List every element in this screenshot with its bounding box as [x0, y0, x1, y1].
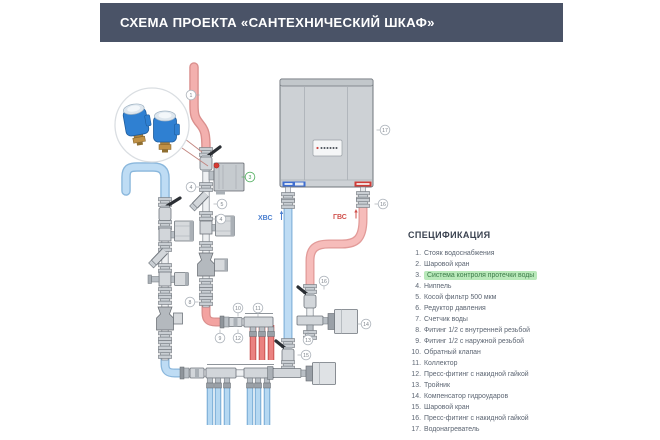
cold-arrow-icon [280, 211, 283, 215]
svg-text:17: 17 [382, 128, 388, 134]
leak-sensor-dot [214, 163, 219, 168]
water-hammer-arrestor [306, 363, 336, 385]
item-number: 9. [408, 338, 421, 345]
item-number: 8. [408, 327, 421, 334]
item-number: 11. [408, 360, 421, 367]
item-label: Водонагреватель [424, 426, 480, 433]
svg-text:8: 8 [189, 300, 192, 306]
svg-text:3: 3 [249, 175, 252, 181]
pressure-reducer [198, 253, 228, 276]
svg-text:12: 12 [235, 336, 241, 342]
item-label: Фитинг 1/2 с наружной резьбой [424, 338, 524, 345]
flow-labels: ХВС ГВС [258, 209, 358, 222]
marker-14: 14 [358, 319, 371, 329]
list-item: 2.Шаровой кран [408, 259, 658, 270]
svg-text:1: 1 [190, 93, 193, 99]
list-item: 13.Тройник [408, 380, 658, 391]
heater-cold-badge [283, 182, 306, 187]
item-number: 15. [408, 404, 421, 411]
heater-display [313, 140, 342, 156]
item-number: 4. [408, 283, 421, 290]
cold-label: ХВС [258, 215, 273, 222]
list-item: 11.Коллектор [408, 358, 658, 369]
item-number: 6. [408, 305, 421, 312]
list-item: 16.Пресс-фитинг с накидной гайкой [408, 413, 658, 424]
item-number: 10. [408, 349, 421, 356]
list-item: 7.Счетчик воды [408, 314, 658, 325]
tee-with-gauge-port [148, 272, 189, 286]
svg-text:11: 11 [255, 306, 260, 312]
item-number: 5. [408, 294, 421, 301]
item-number: 1. [408, 250, 421, 257]
item-label: Косой фильтр 500 мкм [424, 294, 496, 301]
item-number: 13. [408, 382, 421, 389]
marker-17: 17 [377, 125, 390, 135]
list-item: 10.Обратный клапан [408, 347, 658, 358]
item-number: 2. [408, 261, 421, 268]
item-label: Пресс-фитинг с накидной гайкой [424, 415, 529, 422]
marker-9: 9 [215, 330, 225, 343]
plumbing-diagram: ХВС ГВС [95, 55, 415, 440]
list-item: 12.Пресс-фитинг с накидной гайкой [408, 369, 658, 380]
item-label: Фитинг 1/2 с внутренней резьбой [424, 327, 530, 334]
item-number: 16. [408, 415, 421, 422]
water-hammer-arrestor [328, 310, 358, 334]
hot-label: ГВС [333, 214, 347, 221]
list-item: 15.Шаровой кран [408, 402, 658, 413]
hot-arrow-icon [354, 209, 357, 213]
cold-outlet-pipes [210, 383, 267, 425]
svg-text:9: 9 [219, 336, 222, 342]
pressure-reducer [157, 307, 183, 330]
svg-text:10: 10 [235, 306, 241, 312]
heater-hot-badge [355, 182, 372, 187]
hot-manifold-outlets [250, 327, 275, 337]
item-label: Коллектор [424, 360, 457, 367]
item-label: Система контроля протечки воды [424, 271, 537, 280]
marker-15: 15 [298, 350, 311, 360]
page: СХЕМА ПРОЕКТА «САНТЕХНИЧЕСКИЙ ШКАФ» [0, 0, 660, 440]
svg-text:5: 5 [221, 202, 224, 208]
item-label: Шаровой кран [424, 404, 469, 411]
item-label: Компенсатор гидроударов [424, 393, 508, 400]
item-number: 17. [408, 426, 421, 433]
item-label: Обратный клапан [424, 349, 481, 356]
leak-control-unit [209, 163, 244, 195]
page-title: СХЕМА ПРОЕКТА «САНТЕХНИЧЕСКИЙ ШКАФ» [100, 3, 563, 42]
item-label: Редуктор давления [424, 305, 486, 312]
hot-bottom-assembly [297, 285, 358, 340]
list-item: 6.Редуктор давления [408, 303, 658, 314]
svg-text:16: 16 [321, 279, 327, 285]
item-label: Стояк водоснабжения [424, 250, 494, 257]
item-number: 3. [408, 272, 421, 279]
item-label: Пресс-фитинг с накидной гайкой [424, 371, 529, 378]
list-item: 3.Система контроля протечки воды [408, 270, 658, 281]
cold-manifold-outlets [207, 378, 271, 388]
water-heater [280, 79, 373, 209]
svg-text:16: 16 [380, 202, 386, 208]
hot-manifold [220, 314, 275, 337]
cold-bottom-assembly [268, 339, 336, 385]
cold-column-components [148, 198, 194, 359]
marker-12: 12 [233, 330, 243, 343]
list-item: 17.Водонагреватель [408, 424, 658, 435]
cold-manifold [180, 365, 274, 389]
svg-text:4: 4 [220, 217, 223, 223]
spec-list: 1.Стояк водоснабжения2.Шаровой кран3.Сис… [408, 248, 658, 435]
specification-title: СПЕЦИФИКАЦИЯ [408, 230, 658, 240]
list-item: 5.Косой фильтр 500 мкм [408, 292, 658, 303]
marker-16: 16 [375, 199, 388, 209]
marker-11: 11 [253, 303, 263, 316]
list-item: 8.Фитинг 1/2 с внутренней резьбой [408, 325, 658, 336]
item-label: Шаровой кран [424, 261, 469, 268]
list-item: 4.Ниппель [408, 281, 658, 292]
item-label: Тройник [424, 382, 450, 389]
marker-10: 10 [233, 303, 243, 316]
cold-riser-pipe [126, 167, 165, 199]
marker-4: 4 [186, 182, 199, 192]
item-number: 7. [408, 316, 421, 323]
svg-text:13: 13 [305, 338, 311, 344]
hot-riser-pipe [194, 67, 206, 149]
svg-text:15: 15 [303, 353, 309, 359]
hot-column-components [190, 147, 244, 306]
marker-5: 5 [214, 199, 227, 209]
item-number: 14. [408, 393, 421, 400]
item-number: 12. [408, 371, 421, 378]
svg-text:14: 14 [363, 322, 369, 328]
marker-16: 16 [319, 276, 329, 289]
svg-text:4: 4 [190, 185, 193, 191]
specification-panel: СПЕЦИФИКАЦИЯ 1.Стояк водоснабжения2.Шаро… [408, 230, 658, 435]
list-item: 14.Компенсатор гидроударов [408, 391, 658, 402]
list-item: 1.Стояк водоснабжения [408, 248, 658, 259]
list-item: 9.Фитинг 1/2 с наружной резьбой [408, 336, 658, 347]
marker-8: 8 [185, 297, 198, 307]
item-label: Счетчик воды [424, 316, 468, 323]
marker-4: 4 [213, 214, 226, 224]
item-label: Ниппель [424, 283, 452, 290]
